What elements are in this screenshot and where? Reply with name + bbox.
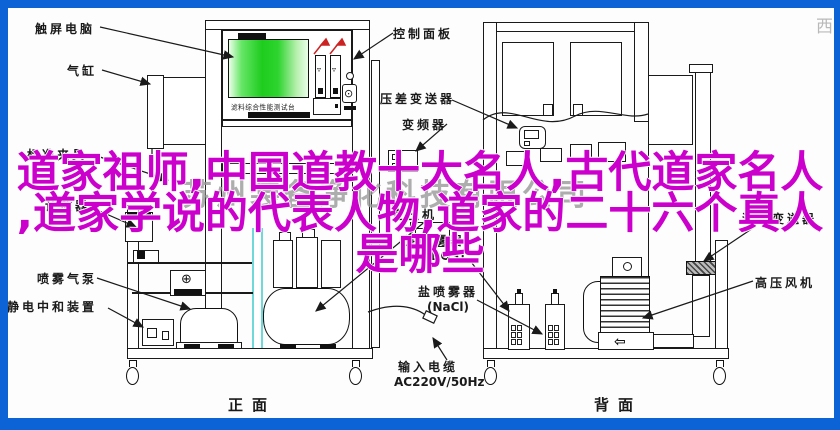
overlay-line-1: 道家祖师,中国道教十大名人,古代道家名人 bbox=[0, 153, 840, 194]
overlay-line-3: 是哪些 bbox=[0, 235, 840, 276]
cable-plug bbox=[423, 311, 437, 323]
curtain-wave-line bbox=[483, 111, 648, 121]
valve-icon bbox=[321, 39, 329, 45]
callout-line bbox=[416, 124, 447, 151]
input-cable-curve bbox=[368, 306, 428, 317]
seo-title-overlay: 道家祖师,中国道教十大名人,古代道家名人 ,道家学说的代表人物,道家的二十六个真… bbox=[0, 153, 840, 276]
callout-line bbox=[100, 27, 233, 57]
callout-line bbox=[477, 300, 542, 334]
frame-bottom bbox=[0, 418, 840, 430]
callout-line bbox=[433, 338, 447, 360]
overlay-line-2: ,道家学说的代表人物,道家的二十六个真人 bbox=[0, 194, 840, 235]
frame-top bbox=[0, 0, 840, 8]
callout-line bbox=[108, 308, 143, 327]
diagram-canvas: 滤料综合性能测试台 ▿ ▿ ⊙ ⊕ bbox=[0, 0, 840, 430]
valve-icon bbox=[337, 39, 345, 45]
callout-line bbox=[643, 281, 753, 318]
callout-line bbox=[452, 100, 517, 128]
frame-left bbox=[0, 0, 8, 430]
frame-right bbox=[834, 0, 840, 430]
callout-line bbox=[97, 278, 190, 309]
callout-line bbox=[102, 70, 150, 84]
callout-line bbox=[354, 33, 393, 59]
